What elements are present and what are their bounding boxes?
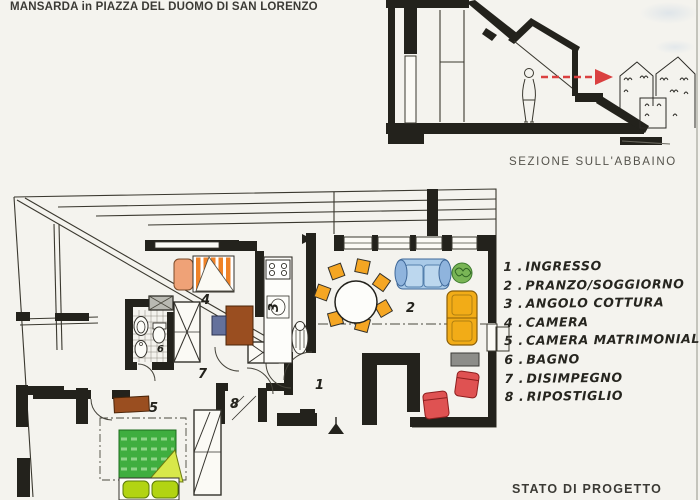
scanned-architectural-drawing: { "title": "MANSARDA in PIAZZA DEL DUOMO… [0,0,700,500]
floor-plan [14,189,509,500]
room-label-ingresso: 1 [315,378,324,393]
entrance-marker [328,417,344,434]
headboard-chair [174,259,193,290]
sofa-blue [395,259,451,289]
plant [452,263,472,283]
desk-chair [212,316,226,335]
section-drawing [386,0,695,145]
armchair-red [454,371,479,399]
room-label-camera: 4 [201,293,210,308]
room-label-matrimoniale: 5 [149,401,158,416]
living-room [314,259,479,420]
dresser [114,396,150,413]
dining-table [335,281,377,323]
pillow [123,481,149,498]
stove [266,260,290,279]
drawing-canvas [0,0,700,500]
desk [226,306,253,345]
pillow [152,481,178,498]
armchair-red [423,391,450,420]
sofa-yellow [447,291,477,345]
window-sill [496,327,509,351]
person-figure [523,69,536,123]
room-label-cottura: 3 [267,303,282,312]
dormer-window-wall [572,49,578,96]
room-label-soggiorno: 2 [406,301,415,316]
toilet [153,327,165,343]
room-label-bagno: 6 [157,344,164,355]
shelf [451,353,479,366]
room-label-ripostiglio: 8 [230,397,239,412]
stair-well [362,353,420,425]
room-label-disimpegno: 7 [198,367,207,382]
bidet [135,341,147,358]
